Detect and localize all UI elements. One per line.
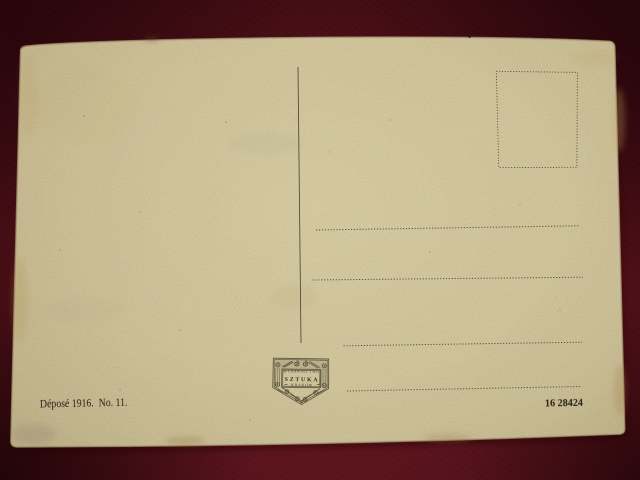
svg-text:WYDAWNICTWO: WYDAWNICTWO — [283, 369, 319, 374]
svg-text:KRAKÓW: KRAKÓW — [291, 382, 313, 387]
svg-text:Déposé 1916. No. 11.: Déposé 1916. No. 11. — [40, 395, 128, 411]
svg-text:16 28424: 16 28424 — [545, 397, 584, 410]
